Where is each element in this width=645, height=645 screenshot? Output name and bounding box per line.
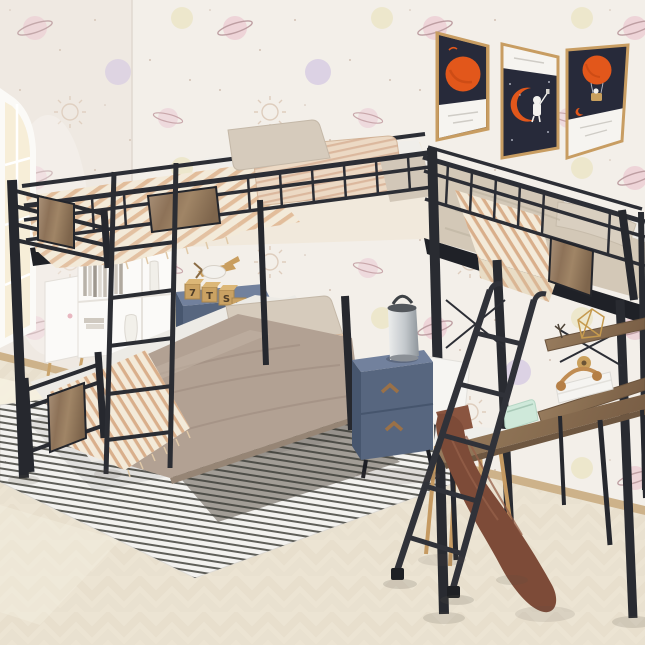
shadow-ladder-right [440,595,474,605]
product-photo-bunk-bed-room: 7 T S K [0,0,645,645]
shadow-bunk-ladder [94,469,122,479]
poster3-astronaut [593,88,598,93]
shelf-vase-bottom [125,315,138,344]
shadow-loft-leg-mid [496,575,528,585]
shadow-loft-leg-left [423,612,465,624]
nightstand2-side [352,360,361,460]
poster-astronaut-moon [502,44,558,158]
shelf-vase-top [150,261,159,291]
poster-hot-air-balloon [567,45,628,158]
tape-roll-hole [582,361,587,366]
block-letter-T: T [206,291,213,302]
lamp-top [388,304,417,312]
scene-canvas: 7 T S K [0,0,645,645]
poster-orange-planet [437,33,488,140]
shadow-ladder-left [383,579,417,589]
poster3-balloon [583,56,612,85]
cabinet-door [45,276,78,363]
block-letter-7: 7 [189,288,196,299]
table-lamp [386,296,419,363]
bunk-post-foot-corner [104,210,108,268]
ladder-foot-left [391,568,404,580]
shadow-blanket [515,606,575,622]
shadow-bunk-post [8,475,40,485]
shadow-nightstand2 [356,468,440,484]
headphones-pad-right [592,371,602,381]
nightstand2-front [361,362,433,460]
shadow-chair [418,554,466,566]
lamp-base [390,355,419,362]
cabinet-handle [68,314,73,319]
upper-footboard-wood-panel [38,196,74,248]
block-letter-S: S [223,294,230,305]
poster3-basket [591,93,602,101]
plane-body [203,266,226,279]
headphones-pad-left [556,381,566,391]
lamp-body [388,306,419,360]
upper-rail-wood-panel [148,187,220,232]
